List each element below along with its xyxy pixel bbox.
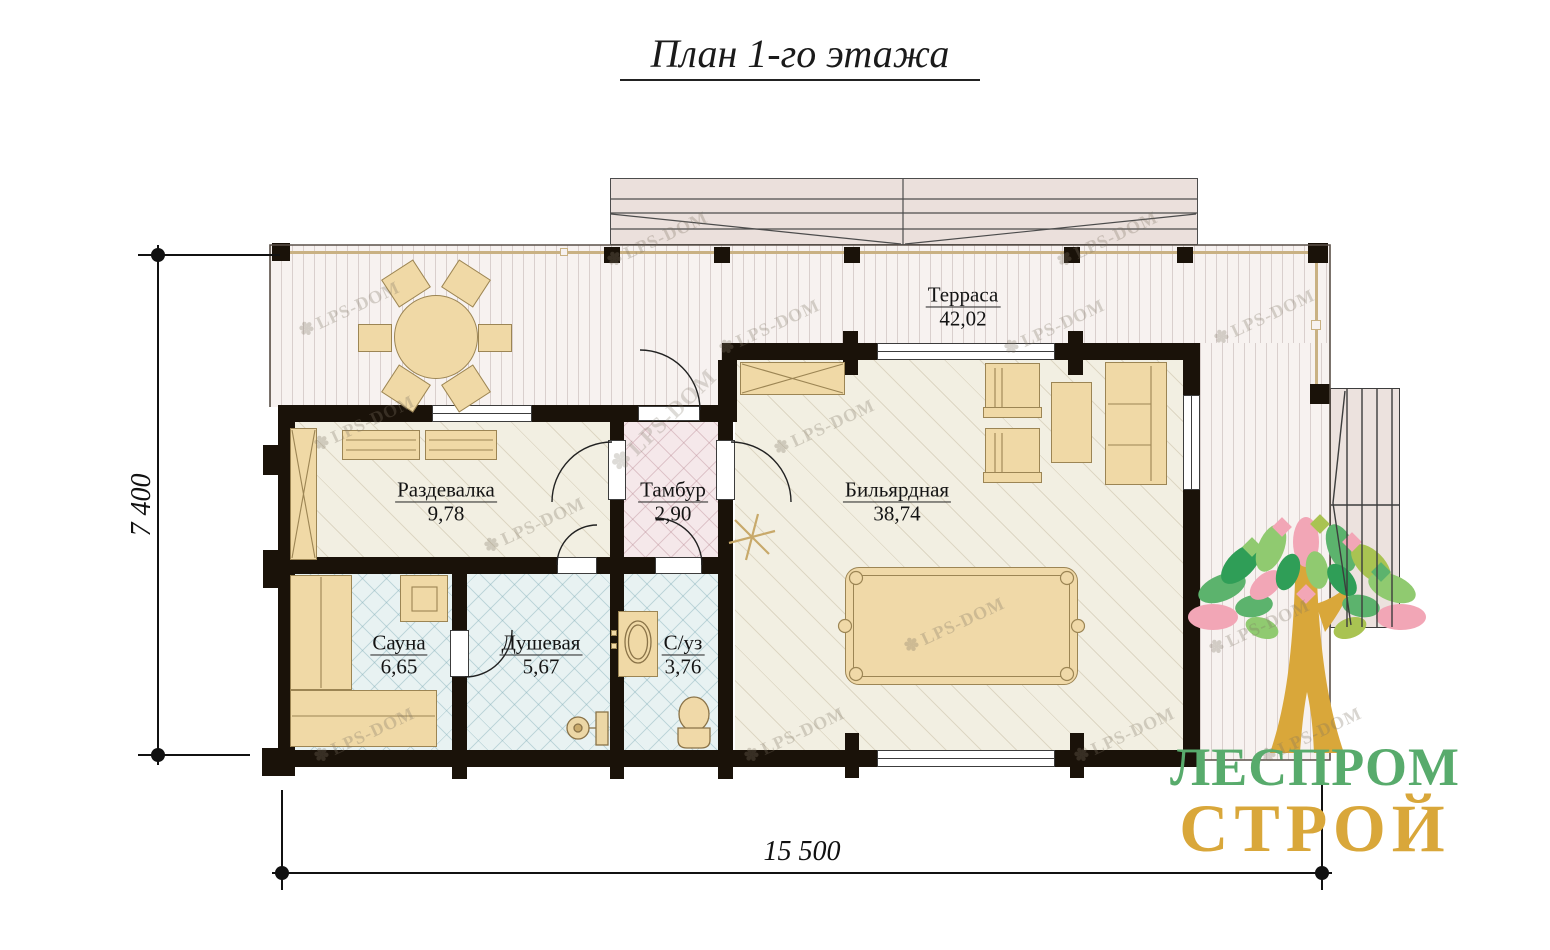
wall-pilaster [262, 748, 295, 776]
wall-pilaster [1068, 360, 1083, 375]
room-label-sauna: Сауна 6,65 [370, 631, 427, 678]
window [877, 750, 1055, 767]
room-name: Бильярдная [843, 477, 951, 502]
dining-table [394, 295, 478, 379]
room-name: Сауна [370, 630, 427, 655]
window [1183, 395, 1200, 490]
terrace-post [1310, 384, 1330, 404]
terrace-post [844, 247, 860, 263]
room-terrace-floor [270, 343, 722, 407]
room-label-shower: Душевая 5,67 [500, 631, 583, 678]
door-leaf [655, 557, 702, 574]
room-label-wc: С/уз 3,76 [662, 631, 705, 678]
door-leaf [450, 630, 469, 677]
wall-pilaster [263, 445, 278, 475]
terrace-post [272, 243, 290, 261]
wardrobe [290, 428, 317, 560]
floor-plan-sheet: План 1-го этажа [0, 0, 1550, 950]
terrace-post [1177, 247, 1193, 263]
staircase [1330, 388, 1400, 628]
room-label-terrace: Терраса 42,02 [926, 283, 1001, 330]
room-name: Терраса [926, 282, 1001, 307]
room-name: С/уз [662, 630, 705, 655]
wall-pilaster [452, 767, 467, 779]
room-area: 9,78 [395, 502, 497, 526]
wall-pilaster [845, 733, 859, 750]
dimension-extension [281, 790, 283, 890]
armchair [985, 428, 1040, 478]
wall-pilaster [263, 550, 278, 588]
dimension-value-vertical: 7 400 [126, 474, 158, 537]
room-name: Раздевалка [395, 477, 497, 502]
page-title: План 1-го этажа [620, 30, 980, 81]
terrace-railing [288, 251, 1318, 254]
railing-post [1311, 320, 1321, 330]
dimension-value-horizontal: 15 500 [764, 836, 841, 868]
sink [618, 611, 658, 677]
armchair-base [983, 472, 1042, 483]
sink-tap [611, 630, 617, 636]
room-name: Тамбур [638, 477, 708, 502]
room-area: 42,02 [926, 307, 1001, 331]
terrace-post [714, 247, 730, 263]
window [432, 405, 532, 422]
bench [425, 430, 497, 460]
wall-pilaster [1068, 331, 1083, 343]
armchair-base [983, 407, 1042, 418]
sauna-bench [290, 575, 352, 690]
room-area: 3,76 [662, 655, 705, 679]
logo-text-lesprom: ЛЕСПРОМ [1130, 740, 1500, 794]
wall [278, 750, 1200, 767]
dimension-extension [138, 754, 250, 756]
sauna-stove [400, 575, 448, 622]
wall-pilaster [845, 767, 859, 778]
dimension-line-horizontal [272, 872, 1332, 874]
coffee-table [1051, 382, 1092, 463]
sofa [1105, 362, 1167, 485]
terrace-post [1308, 243, 1328, 263]
wall-pilaster [1070, 767, 1084, 778]
dimension-extension [138, 254, 280, 256]
terrace-chair [358, 324, 392, 352]
terrace-chair [478, 324, 512, 352]
sink-tap [611, 643, 617, 649]
wall-pilaster [718, 767, 733, 779]
room-label-billiard: Бильярдная 38,74 [843, 478, 951, 525]
wall-pilaster [610, 767, 624, 779]
room-label-dressing: Раздевалка 9,78 [395, 478, 497, 525]
room-terrace-floor [1200, 343, 1330, 760]
railing-post [560, 248, 568, 256]
room-area: 6,65 [370, 655, 427, 679]
door-leaf [557, 557, 597, 574]
room-label-vestibule: Тамбур 2,90 [638, 478, 708, 525]
room-name: Душевая [500, 630, 583, 655]
room-area: 5,67 [500, 655, 583, 679]
logo-text-stroy: СТРОЙ [1130, 794, 1500, 862]
room-area: 2,90 [638, 502, 708, 526]
wall-pilaster [843, 360, 858, 375]
door-leaf [716, 440, 735, 500]
cabinet [740, 362, 845, 395]
room-area: 38,74 [843, 502, 951, 526]
wall-pilaster [843, 331, 858, 343]
armchair [985, 363, 1040, 413]
wall [718, 574, 733, 767]
